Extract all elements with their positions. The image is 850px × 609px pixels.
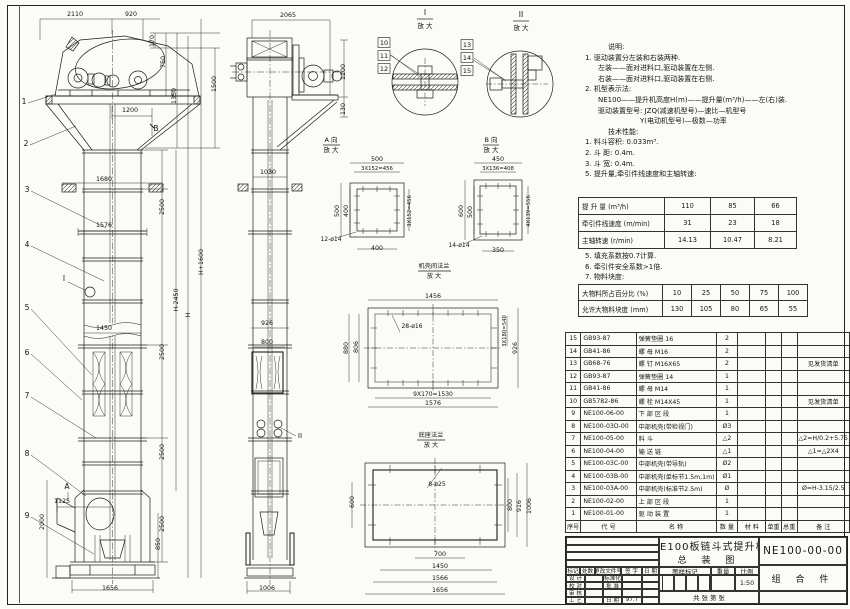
drawing-number: NE100-00-00: [759, 537, 847, 565]
bom-cell: 11: [566, 383, 581, 396]
bom-cell: △2: [716, 433, 738, 446]
bom-cell: [738, 458, 766, 471]
bom-cell: [766, 370, 782, 383]
note-line: 驱动装置型号: JZQ(减速机型号)—速比—机型号: [578, 106, 787, 117]
bom-cell: [738, 408, 766, 421]
dim-label-28-16: 28-ø16: [401, 323, 422, 330]
bom-row: 8NE100-03D-00中部机壳(带检视门)Ø3: [566, 420, 850, 433]
sheet-count: 共 张 第 张: [659, 591, 759, 604]
bom-cell: 中部机壳(带导轨): [636, 458, 716, 471]
dim-label-15: 15: [463, 67, 471, 75]
bom-cell: 料 斗: [636, 433, 716, 446]
bom-cell: 驱 动 装 置: [636, 508, 716, 521]
bom-row: 7NE100-05-00料 斗△2△2=H/0.2+5.75: [566, 433, 850, 446]
dim-label-400: 400: [343, 205, 350, 217]
table-cell: 8.21: [755, 232, 797, 249]
bom-cell: [738, 508, 766, 521]
dim-label-130: 130: [340, 103, 347, 115]
dim-label-800: 800: [507, 499, 514, 511]
signature-cell: [585, 575, 603, 582]
signature-cell: [603, 589, 622, 596]
dim-label--: 机壳间法兰: [419, 262, 450, 270]
dim-label-2000: 2000: [39, 514, 46, 530]
table-cell: 55: [779, 301, 808, 317]
signature-cell: [642, 582, 659, 589]
dim-label-8: 8: [25, 449, 30, 458]
bom-cell: NE100-04-00: [581, 445, 636, 458]
bom-header-cell: 序号: [566, 520, 581, 533]
dim-label-2500: 2500: [159, 444, 166, 460]
drawing-title-line1: NE100板链斗式提升机: [659, 538, 759, 553]
dim-label-1456: 1456: [425, 293, 441, 300]
bom-cell: [738, 470, 766, 483]
bom-cell: 下 部 区 段: [636, 408, 716, 421]
dim-label-3X180-540: 3X180=540: [502, 315, 508, 347]
bom-row: 4NE100-03B-00中部机壳(单标节1.5m,1m)Ø1: [566, 470, 850, 483]
bom-header-cell: 代 号: [581, 520, 636, 533]
bom-cell: [766, 508, 782, 521]
change-row: [566, 537, 659, 545]
dim-label-1656: 1656: [102, 585, 118, 592]
bom-cell: △2=H/0.2+5.75: [797, 433, 849, 446]
dim-label-13: 13: [463, 41, 471, 49]
dim-label-9X170-1530: 9X170=1530: [413, 391, 453, 398]
dim-label-600: 600: [458, 205, 465, 217]
dim-label-3X136-408: 3X136=408: [482, 166, 514, 172]
dim-label-350: 350: [492, 247, 504, 254]
bom-cell: NE100-03B-00: [581, 470, 636, 483]
casing-flange-detail: [349, 271, 518, 407]
dim-label-14-14: 14-ø14: [448, 242, 469, 249]
bom-cell: Ø2: [716, 458, 738, 471]
bom-cell: GB5782-86: [581, 395, 636, 408]
bom-cell: 10: [566, 395, 581, 408]
change-row: [566, 560, 659, 568]
dim-label--: 放 大: [424, 441, 438, 449]
signature-cell: 审 核: [566, 589, 585, 596]
bom-cell: GB93-87: [581, 333, 636, 346]
bom-row: 2NE100-02-00上 部 区 段1: [566, 495, 850, 508]
dim-label-500: 500: [467, 206, 474, 218]
dim-label-II: II: [519, 10, 523, 19]
bom-header-cell: 总重: [781, 520, 797, 533]
bom-cell: [766, 333, 782, 346]
table-cell: 75: [750, 285, 779, 301]
table-cell: 主轴转速 (r/min): [579, 232, 665, 249]
bom-header-cell: 材 料: [738, 520, 766, 533]
bom-cell: [797, 370, 849, 383]
dim-label-400: 400: [371, 245, 383, 252]
bom-cell: 4: [566, 470, 581, 483]
view-A: [323, 145, 409, 249]
change-row: [566, 545, 659, 553]
bom-cell: 1: [716, 383, 738, 396]
bom-cell: [797, 458, 849, 471]
bom-cell: [797, 345, 849, 358]
bom-cell: 中部机壳(标准节2.5m): [636, 483, 716, 496]
dim-label-850: 850: [155, 538, 162, 550]
table-cell: 牵引件线速度 (m/min): [579, 215, 665, 232]
table-cell: 25: [692, 285, 721, 301]
bom-row: 12GB93-87弹簧垫圈 141: [566, 370, 850, 383]
bom-row: 14GB41-86螺 母 M162: [566, 345, 850, 358]
bom-cell: 15: [566, 333, 581, 346]
bom-row: 9NE100-06-00下 部 区 段1: [566, 408, 850, 421]
bom-cell: NE100-05-00: [581, 433, 636, 446]
dim-label-1656: 1656: [432, 587, 448, 594]
dim-label-1500: 1500: [211, 76, 218, 92]
dim-label-A-: A 向: [324, 135, 337, 144]
bom-row: 13GB68-76螺 钉 M16X652见发货清单: [566, 358, 850, 371]
bom-cell: NE100-06-00: [581, 408, 636, 421]
bom-row: 5NE100-03C-00中部机壳(带导轨)Ø2: [566, 458, 850, 471]
dim-label-1450: 1450: [432, 563, 448, 570]
bom-cell: [797, 408, 849, 421]
bom-cell: NE100-01-00: [581, 508, 636, 521]
bom-cell: 14: [566, 345, 581, 358]
bom-header-cell: 名 称: [636, 520, 716, 533]
bom-cell: [766, 383, 782, 396]
dim-label-1200: 1200: [122, 107, 138, 114]
bom-cell: Ø: [716, 483, 738, 496]
bom-cell: [738, 333, 766, 346]
change-header-cell: 更改文件号: [595, 567, 621, 575]
bom-cell: [766, 408, 782, 421]
dim-label-1450: 1450: [96, 325, 112, 332]
bom-row: 1NE100-01-00驱 动 装 置1: [566, 508, 850, 521]
dim-label-600: 600: [349, 496, 356, 508]
dim-label-1125: 1125: [54, 498, 70, 505]
dim-label-I: I: [63, 274, 65, 283]
dim-label-11: 11: [380, 52, 388, 60]
dim-label-12-14: 12-ø14: [320, 236, 341, 243]
bom-cell: [738, 395, 766, 408]
bom-cell: 13: [566, 358, 581, 371]
dim-label--: 放 大: [513, 23, 529, 32]
signature-cell: [622, 582, 642, 589]
bom-cell: [766, 483, 782, 496]
bom-cell: 7: [566, 433, 581, 446]
bom-cell: 1: [716, 370, 738, 383]
dim-label--: 底座法兰: [419, 431, 444, 439]
bom-cell: 弹簧垫圈 14: [636, 370, 716, 383]
engineering-drawing-sheet: { "sheet_title": "NE100板链斗式提升机 总装图", "no…: [0, 0, 850, 609]
bom-cell: 螺 母 M16: [636, 345, 716, 358]
dim-label-2500: 2500: [159, 344, 166, 360]
bom-cell: 1: [716, 408, 738, 421]
table-cell: 10.47: [711, 232, 755, 249]
bom-cell: GB41-86: [581, 345, 636, 358]
bom-cell: 8: [566, 420, 581, 433]
dim-label-2500: 2500: [159, 516, 166, 532]
bom-cell: [781, 370, 797, 383]
note-line: 2. 机型表示法:: [578, 84, 787, 95]
dim-label-1576: 1576: [425, 400, 441, 407]
note-line: 说明:: [578, 42, 787, 53]
dim-label-B-: B 向: [484, 135, 497, 144]
bom-cell: [781, 395, 797, 408]
dim-label-B: B: [153, 124, 158, 133]
bom-cell: [766, 445, 782, 458]
dim-label-1006: 1006: [259, 585, 275, 592]
bom-cell: 见发货清单: [797, 358, 849, 371]
notes-block: 说明:1. 驱动装置分左装和右装两种.左装——面对进料口,驱动装置在左侧.右装—…: [578, 42, 787, 180]
dim-label-H-1600: H+1600: [198, 249, 205, 275]
table-cell: 130: [663, 301, 692, 317]
signature-cell: 批 准: [603, 582, 622, 589]
bom-cell: [781, 358, 797, 371]
note-line: NE100——提升机高度H(m)——提升量(m³/h)——左(右)装.: [578, 95, 787, 106]
signature-cell: 校 对: [566, 582, 585, 589]
signature-cell: [585, 582, 603, 589]
dim-label-1006: 1006: [526, 498, 533, 514]
dim-label-880: 880: [343, 342, 350, 354]
dim-label-10: 10: [380, 39, 388, 47]
dim-label-1200: 1200: [340, 64, 347, 80]
bom-cell: 2: [716, 358, 738, 371]
change-header-cell: 日 期: [642, 567, 659, 575]
bom-row: 15GB93-87弹簧垫圈 162: [566, 333, 850, 346]
bom-cell: 1: [566, 508, 581, 521]
bom-header-cell: 数 量: [716, 520, 738, 533]
table-cell: 允许大物料块度 (mm): [579, 301, 663, 317]
bom-cell: [766, 358, 782, 371]
bom-cell: [797, 470, 849, 483]
bom-cell: 螺 钉 M16X65: [636, 358, 716, 371]
table-cell: 66: [755, 198, 797, 215]
signature-cell: 标准化: [603, 575, 622, 582]
bom-cell: [766, 458, 782, 471]
dim-label-920: 920: [125, 11, 137, 18]
signature-cell: [642, 589, 659, 596]
dim-label-4: 4: [25, 240, 30, 249]
bom-cell: 中部机壳(带检视门): [636, 420, 716, 433]
dim-label-1350: 1350: [171, 88, 178, 104]
stamp-label: 图样标记: [659, 567, 711, 575]
note-line: 2. 斗 距: 0.4m.: [578, 148, 787, 159]
signature-cell: 日 期: [603, 597, 622, 604]
dim-label-926: 926: [512, 342, 519, 354]
side-view: [230, 20, 348, 594]
bom-row: 11GB41-86螺 母 M141: [566, 383, 850, 396]
bom-cell: [766, 345, 782, 358]
side-dim-lines: [247, 20, 348, 594]
dim-label-5: 5: [25, 303, 30, 312]
dim-label-8-25: 8-ø25: [428, 481, 445, 488]
detail-I: [390, 19, 458, 115]
signature-cell: 97.7: [622, 597, 642, 604]
dim-label-450: 450: [492, 156, 504, 163]
table-cell: 65: [750, 301, 779, 317]
note-line: 左装——面对进料口,驱动装置在左侧.: [578, 63, 787, 74]
bom-cell: [797, 508, 849, 521]
dim-label-A: A: [64, 482, 70, 491]
dim-label-H: H: [185, 312, 192, 317]
scale-value: 1:50: [735, 575, 759, 591]
note-line: 5. 填充系数按0.7计算.: [578, 251, 662, 262]
note-line: 1. 驱动装置分左装和右装两种.: [578, 53, 787, 64]
dim-label-3X152-456: 3X152=456: [407, 195, 413, 227]
dim-label-3: 3: [25, 185, 30, 194]
bom-cell: [781, 495, 797, 508]
table-cell: 23: [711, 215, 755, 232]
dim-label-I: I: [424, 8, 426, 17]
part-type: 组 合 件: [759, 565, 847, 591]
dim-label-9: 9: [25, 511, 30, 520]
bom-cell: [766, 395, 782, 408]
bom-cell: NE100-03D-00: [581, 420, 636, 433]
bom-row: 6NE100-04-00输 送 链△1△1=△2X4: [566, 445, 850, 458]
bom-cell: [781, 408, 797, 421]
note-line: 5. 提升量,牵引件线速度和主轴转速:: [578, 169, 787, 180]
bom-cell: Ø3: [716, 420, 738, 433]
dim-label-H-2450: H-2450: [173, 288, 180, 311]
note-line: 右装——面对进料口,驱动装置在右侧.: [578, 74, 787, 85]
note-line: 技术性能:: [578, 127, 787, 138]
note-line: Y(电动机型号)—极数—功率: [578, 116, 787, 127]
dim-label-806: 806: [353, 341, 360, 353]
title-block: 标记处数更改文件号签 字日 期 设 计标准化校 对批 准审 核工 艺日 期97.…: [565, 536, 848, 605]
table-cell: 80: [721, 301, 750, 317]
bom-cell: 螺 栓 M14X45: [636, 395, 716, 408]
table-cell: 50: [721, 285, 750, 301]
bom-cell: 1: [716, 495, 738, 508]
table-cell: 提 升 量 (m³/h): [579, 198, 665, 215]
bom-cell: 上 部 区 段: [636, 495, 716, 508]
table-cell: 85: [711, 198, 755, 215]
bom-cell: NE100-02-00: [581, 495, 636, 508]
signature-cell: [585, 597, 603, 604]
dim-label-2: 2: [24, 139, 29, 148]
table-cell: 14.13: [665, 232, 711, 249]
bom-cell: [781, 458, 797, 471]
bom-cell: [738, 445, 766, 458]
bom-row: 3NE100-03A-00中部机壳(标准节2.5m)ØØ=H-3.15/2.5: [566, 483, 850, 496]
signature-cell: [622, 575, 642, 582]
table-cell: 18: [755, 215, 797, 232]
table-cell: 31: [665, 215, 711, 232]
signature-cell: [642, 597, 659, 604]
front-dim-lines: [40, 19, 220, 593]
signature-cell: 设 计: [566, 575, 585, 582]
bom-cell: [766, 433, 782, 446]
dim-label-1030: 1030: [260, 169, 276, 176]
bom-cell: NE100-03C-00: [581, 458, 636, 471]
dim-label-2110: 2110: [67, 11, 83, 18]
front-view: [28, 19, 220, 593]
bom-cell: 1: [716, 508, 738, 521]
table-cell: 100: [779, 285, 808, 301]
bom-header-cell: 单重: [766, 520, 782, 533]
bom-row: 10GB5782-86螺 栓 M14X451见发货清单: [566, 395, 850, 408]
bom-cell: △1=△2X4: [797, 445, 849, 458]
bom-cell: 6: [566, 445, 581, 458]
table-cell: 110: [665, 198, 711, 215]
dim-label--: 放 大: [323, 145, 339, 154]
bom-cell: GB93-87: [581, 370, 636, 383]
bom-cell: [797, 420, 849, 433]
dim-label-926: 926: [261, 320, 273, 327]
bom-cell: [797, 333, 849, 346]
dim-label-916: 916: [516, 500, 523, 512]
dim-label-II: II: [298, 432, 302, 440]
bom-cell: [766, 495, 782, 508]
bom-cell: 2: [716, 333, 738, 346]
base-flange-detail: [352, 440, 527, 594]
bom-cell: [738, 433, 766, 446]
dim-label-2065: 2065: [280, 12, 296, 19]
signature-cell: [622, 589, 642, 596]
weight-value: [711, 575, 735, 591]
bom-cell: [766, 420, 782, 433]
bom-cell: Ø1: [716, 470, 738, 483]
spare-cell: [759, 591, 847, 604]
bom-cell: 12: [566, 370, 581, 383]
bom-cell: GB41-86: [581, 383, 636, 396]
table-cell: 大物料所占百分比 (%): [579, 285, 663, 301]
bom-cell: 见发货清单: [797, 395, 849, 408]
bom-cell: [781, 383, 797, 396]
lump-size-table: 大物料所占百分比 (%)10255075100允许大物料块度 (mm)13010…: [578, 284, 808, 317]
note-line: 1. 料斗容积: 0.033m³.: [578, 137, 787, 148]
bom-cell: [738, 345, 766, 358]
bom-cell: 弹簧垫圈 16: [636, 333, 716, 346]
bom-cell: △1: [716, 445, 738, 458]
bom-cell: [781, 445, 797, 458]
dim-label-2500: 2500: [159, 199, 166, 215]
table-cell: 10: [663, 285, 692, 301]
drawing-title: NE100板链斗式提升机 总 装 图: [659, 537, 759, 567]
bom-header-cell: 备 注: [797, 520, 849, 533]
bom-cell: [781, 333, 797, 346]
bom-cell: 1: [716, 395, 738, 408]
bom-cell: NE100-03A-00: [581, 483, 636, 496]
drawing-title-line2: 总 装 图: [678, 553, 741, 566]
note-line: 7. 物料块度:: [578, 272, 662, 283]
dim-label-1566: 1566: [432, 575, 448, 582]
signature-cell: [585, 589, 603, 596]
dim-label--: 放 大: [427, 272, 441, 280]
dim-label-1576: 1576: [96, 222, 112, 229]
bom-cell: [797, 383, 849, 396]
bom-cell: [738, 495, 766, 508]
bom-cell: 3: [566, 483, 581, 496]
stamp-boxes: [659, 575, 711, 591]
parts-list-table: 15GB93-87弹簧垫圈 16214GB41-86螺 母 M16213GB68…: [565, 332, 850, 533]
bom-cell: [797, 495, 849, 508]
bom-cell: Ø=H-3.15/2.5: [797, 483, 849, 496]
scale-label: 比例: [735, 567, 759, 575]
dim-label-3X152-456: 3X152=456: [361, 166, 393, 172]
bom-cell: 2: [716, 345, 738, 358]
dim-label-170: 170: [149, 35, 156, 47]
dim-label-6: 6: [25, 348, 30, 357]
bom-cell: [738, 358, 766, 371]
dim-label-700: 700: [434, 551, 446, 558]
bom-cell: 2: [566, 495, 581, 508]
capacity-speed-table: 提 升 量 (m³/h)1108566牵引件线速度 (m/min)312318主…: [578, 197, 797, 249]
bom-cell: 螺 母 M14: [636, 383, 716, 396]
signature-cell: 工 艺: [566, 597, 585, 604]
bom-cell: [738, 420, 766, 433]
bom-cell: 输 送 链: [636, 445, 716, 458]
note-line: 6. 牵引件安全系数>1倍.: [578, 262, 662, 273]
dim-label-750: 750: [160, 56, 167, 68]
dim-label--: 放 大: [483, 145, 499, 154]
dim-label-500: 500: [371, 156, 383, 163]
dim-label-7: 7: [25, 391, 30, 400]
dim-label--: 放 大: [417, 21, 433, 30]
